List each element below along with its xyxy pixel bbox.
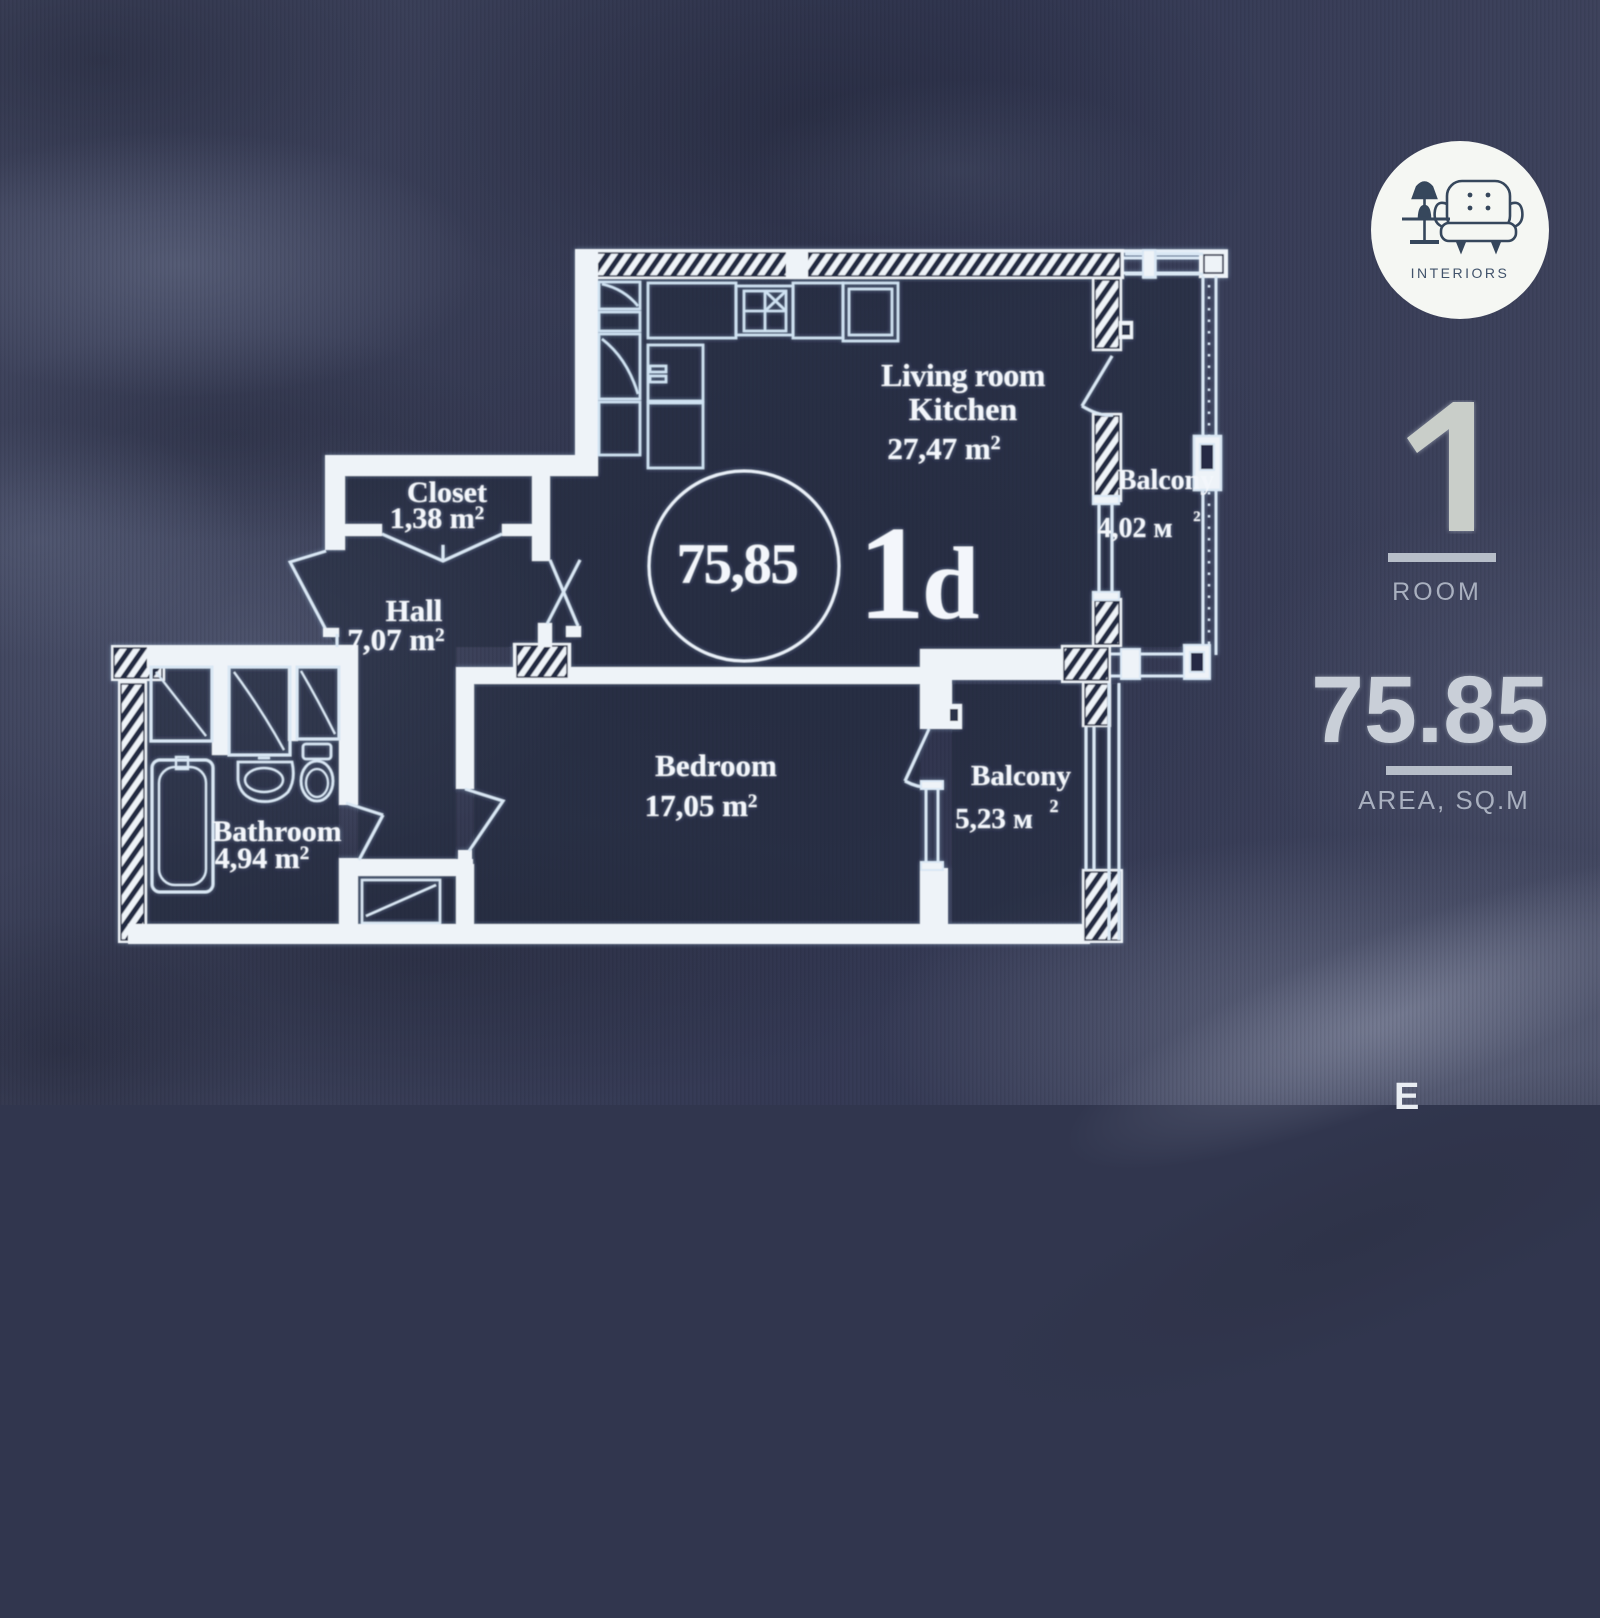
svg-text:Bedroom: Bedroom — [655, 748, 777, 783]
svg-text:7,07 m2: 7,07 m2 — [347, 622, 444, 657]
svg-text:Balcony: Balcony — [1118, 465, 1214, 496]
svg-text:27,47 m2: 27,47 m2 — [887, 431, 1000, 466]
svg-text:4,02 м: 4,02 м — [1097, 513, 1172, 544]
svg-text:1,38 m2: 1,38 m2 — [390, 502, 485, 535]
svg-text:Kitchen: Kitchen — [909, 391, 1018, 427]
svg-text:Living room: Living room — [881, 357, 1046, 393]
svg-text:4,94 m2: 4,94 m2 — [215, 842, 310, 875]
svg-text:75,85: 75,85 — [677, 533, 798, 596]
svg-text:2: 2 — [1193, 509, 1201, 525]
svg-text:17,05 m2: 17,05 m2 — [645, 788, 758, 823]
svg-text:2: 2 — [1050, 796, 1059, 816]
svg-text:5,23 м: 5,23 м — [955, 803, 1033, 835]
svg-text:Balcony: Balcony — [971, 760, 1071, 792]
